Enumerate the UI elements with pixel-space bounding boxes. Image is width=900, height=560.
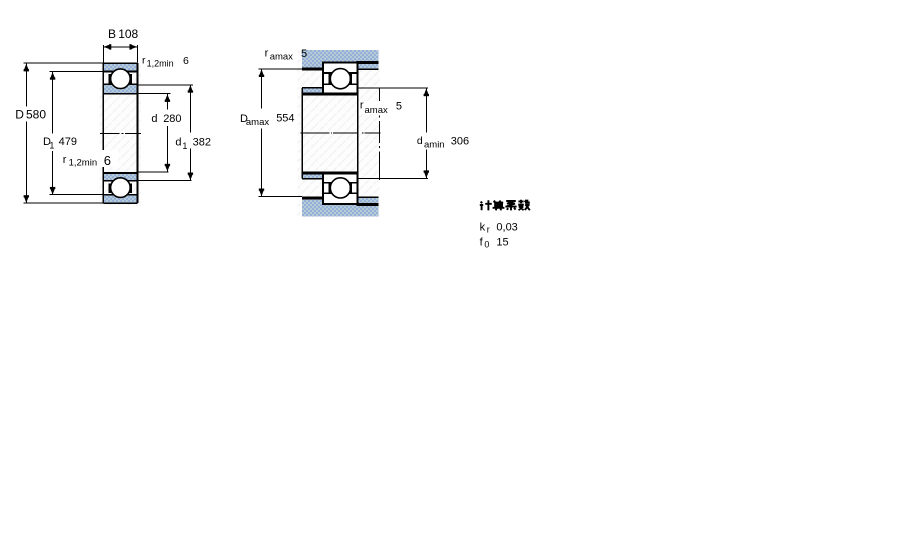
svg-text:5: 5 — [301, 48, 307, 60]
svg-text:1,2min: 1,2min — [69, 157, 98, 168]
svg-text:306: 306 — [451, 135, 469, 147]
svg-text:d: d — [175, 137, 181, 149]
svg-text:k: k — [480, 221, 486, 233]
svg-text:1: 1 — [49, 141, 54, 151]
svg-text:1,2min: 1,2min — [147, 58, 174, 68]
svg-text:382: 382 — [193, 137, 211, 149]
svg-text:0,03: 0,03 — [496, 221, 517, 233]
svg-text:554: 554 — [276, 113, 294, 125]
svg-text:D: D — [15, 107, 24, 121]
svg-text:5: 5 — [396, 100, 402, 112]
svg-text:0: 0 — [484, 240, 489, 250]
svg-text:B: B — [108, 27, 116, 41]
svg-text:6: 6 — [183, 55, 189, 67]
svg-text:amax: amax — [246, 117, 269, 128]
svg-text:r: r — [265, 47, 269, 59]
svg-text:108: 108 — [118, 27, 138, 41]
svg-text:d: d — [417, 135, 423, 147]
svg-text:1: 1 — [182, 141, 187, 151]
svg-text:6: 6 — [104, 153, 111, 168]
svg-text:r: r — [142, 55, 146, 67]
svg-text:d: d — [151, 113, 157, 125]
svg-text:amax: amax — [365, 105, 388, 116]
svg-text:15: 15 — [496, 236, 508, 248]
svg-text:r: r — [63, 154, 67, 166]
svg-text:479: 479 — [59, 136, 77, 148]
svg-text:amin: amin — [424, 140, 445, 151]
svg-text:280: 280 — [163, 113, 181, 125]
svg-text:580: 580 — [26, 107, 46, 121]
svg-text:r: r — [360, 99, 364, 111]
svg-text:amax: amax — [270, 52, 293, 63]
svg-text:r: r — [487, 225, 490, 235]
